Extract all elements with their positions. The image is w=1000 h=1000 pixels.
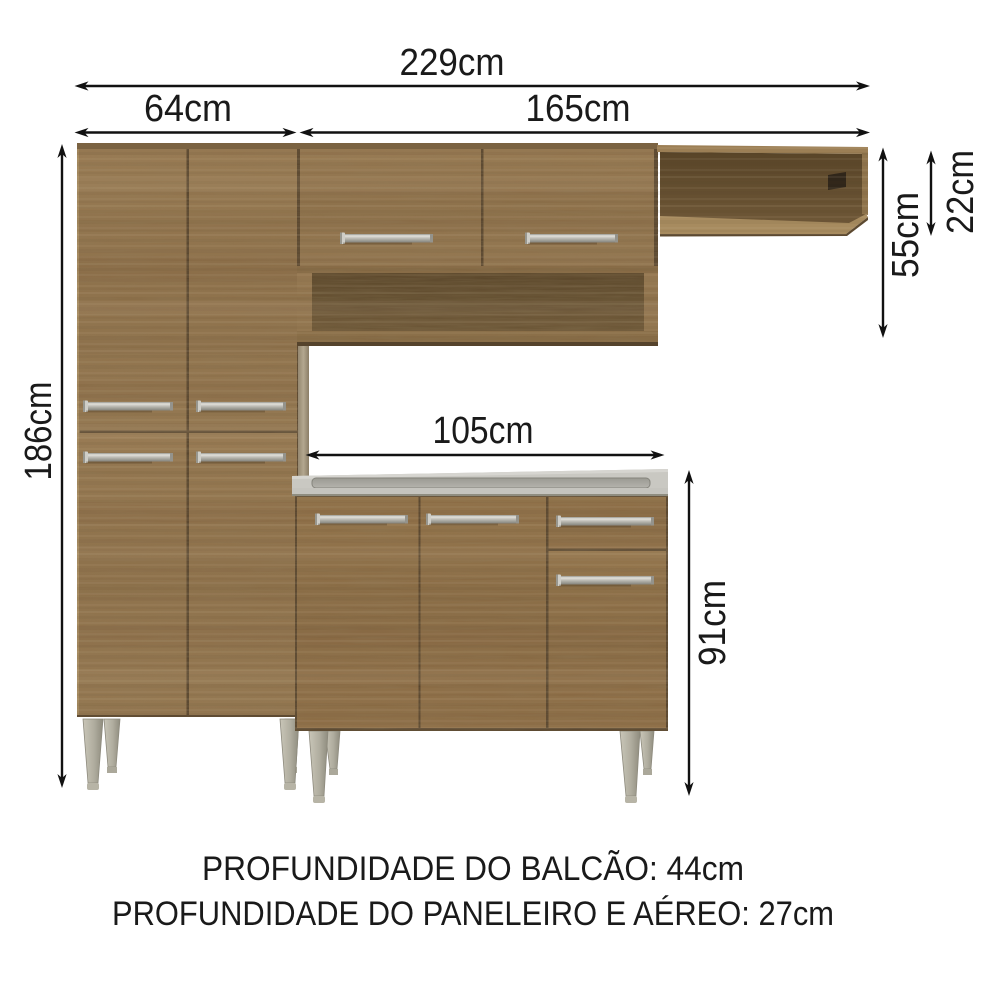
svg-text:165cm: 165cm <box>526 88 631 130</box>
svg-text:229cm: 229cm <box>400 42 505 84</box>
svg-text:91cm: 91cm <box>692 580 734 666</box>
svg-text:55cm: 55cm <box>885 192 927 278</box>
svg-text:105cm: 105cm <box>433 410 534 452</box>
svg-text:186cm: 186cm <box>18 382 60 481</box>
svg-text:PROFUNDIDADE DO BALCÃO: 44cm: PROFUNDIDADE DO BALCÃO: 44cm <box>202 850 744 888</box>
svg-text:PROFUNDIDADE DO PANELEIRO E AÉ: PROFUNDIDADE DO PANELEIRO E AÉREO: 27cm <box>112 895 834 933</box>
svg-text:22cm: 22cm <box>940 150 982 234</box>
svg-text:64cm: 64cm <box>144 88 232 130</box>
